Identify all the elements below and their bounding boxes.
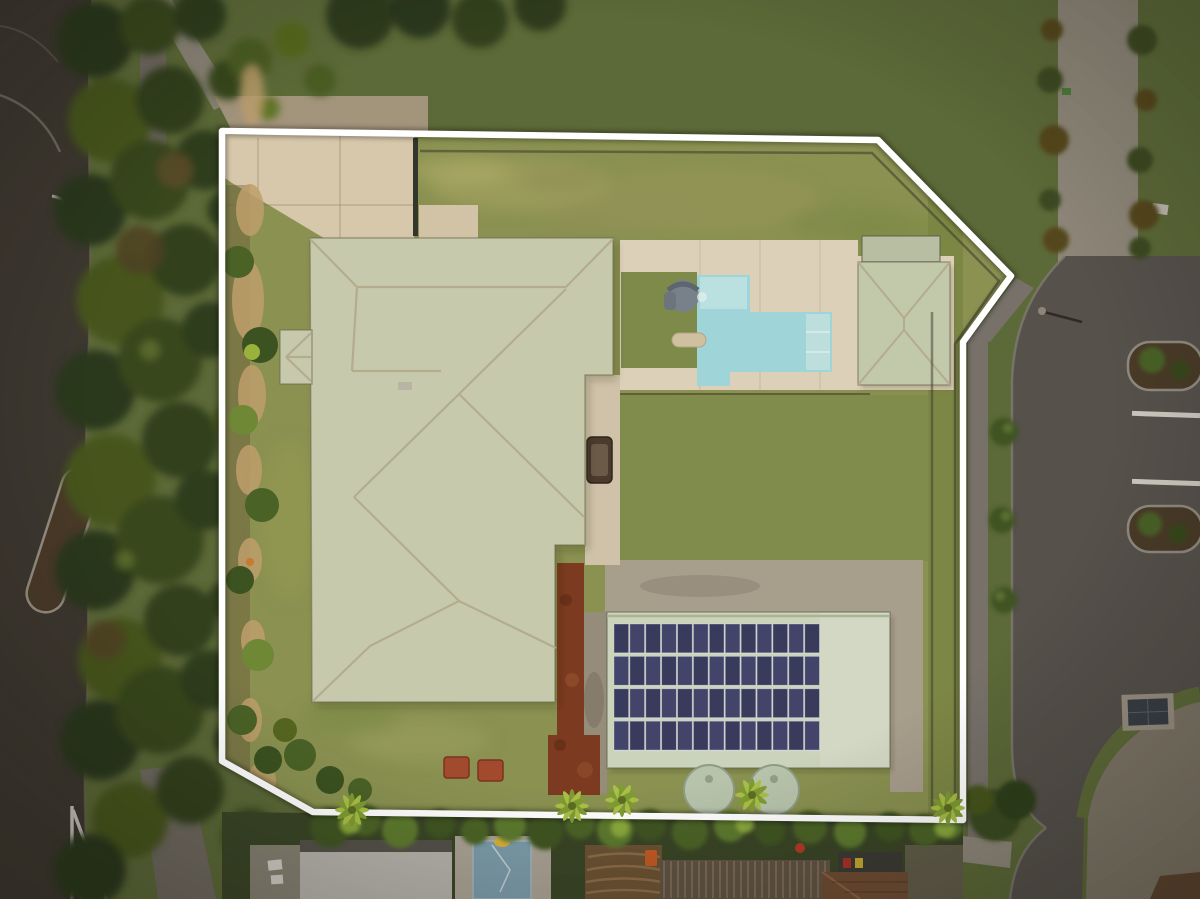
photo-vignette <box>0 0 1200 899</box>
aerial-photo <box>0 0 1200 899</box>
aerial-scene <box>0 0 1200 899</box>
